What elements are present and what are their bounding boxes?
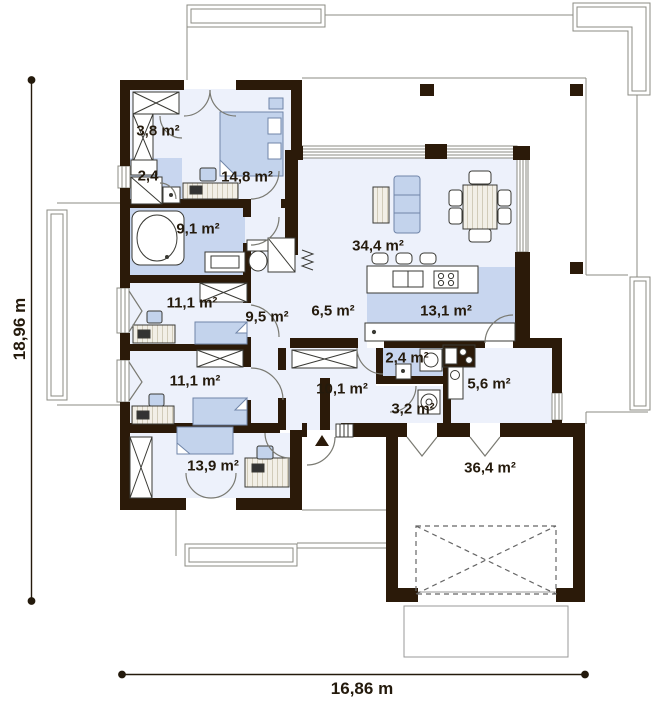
room-label-hallway: 9,5 m² bbox=[245, 310, 289, 325]
room-label-bedroom-4: 13,9 m² bbox=[187, 459, 239, 474]
dimension-label-width: 16,86 m bbox=[331, 679, 393, 699]
room-label-corridor: 6,5 m² bbox=[311, 304, 354, 319]
entrance-arrow-icon bbox=[315, 435, 329, 446]
room-label-bedroom-3: 11,1 m² bbox=[170, 374, 221, 389]
room-label-bedroom-2: 11,1 m² bbox=[167, 296, 218, 311]
garage-parking-symbol bbox=[416, 526, 556, 594]
room-label-bedroom-1: 14,8 m² bbox=[221, 170, 273, 185]
room-label-laundry: 2,4 m² bbox=[385, 351, 428, 366]
room-label-pantry: 5,6 m² bbox=[467, 377, 510, 392]
floorplan-drawing bbox=[0, 0, 655, 708]
room-label-garage: 36,4 m² bbox=[464, 461, 516, 476]
room-label-hall: 10,1 m² bbox=[316, 382, 368, 397]
room-label-bathroom-small: 2,4 bbox=[138, 169, 159, 184]
floorplan-image: 3,8 m² 2,4 14,8 m² 9,1 m² 11,1 m² 9,5 m²… bbox=[0, 0, 655, 708]
room-label-kitchen: 13,1 m² bbox=[420, 304, 472, 319]
room-label-wardrobe: 3,8 m² bbox=[136, 124, 180, 139]
room-label-wc: 3,2 m² bbox=[391, 402, 434, 417]
room-label-living-room: 34,4 m² bbox=[352, 239, 404, 254]
dimension-label-height: 18,96 m bbox=[10, 298, 30, 360]
room-label-bathroom-main: 9,1 m² bbox=[176, 222, 219, 237]
